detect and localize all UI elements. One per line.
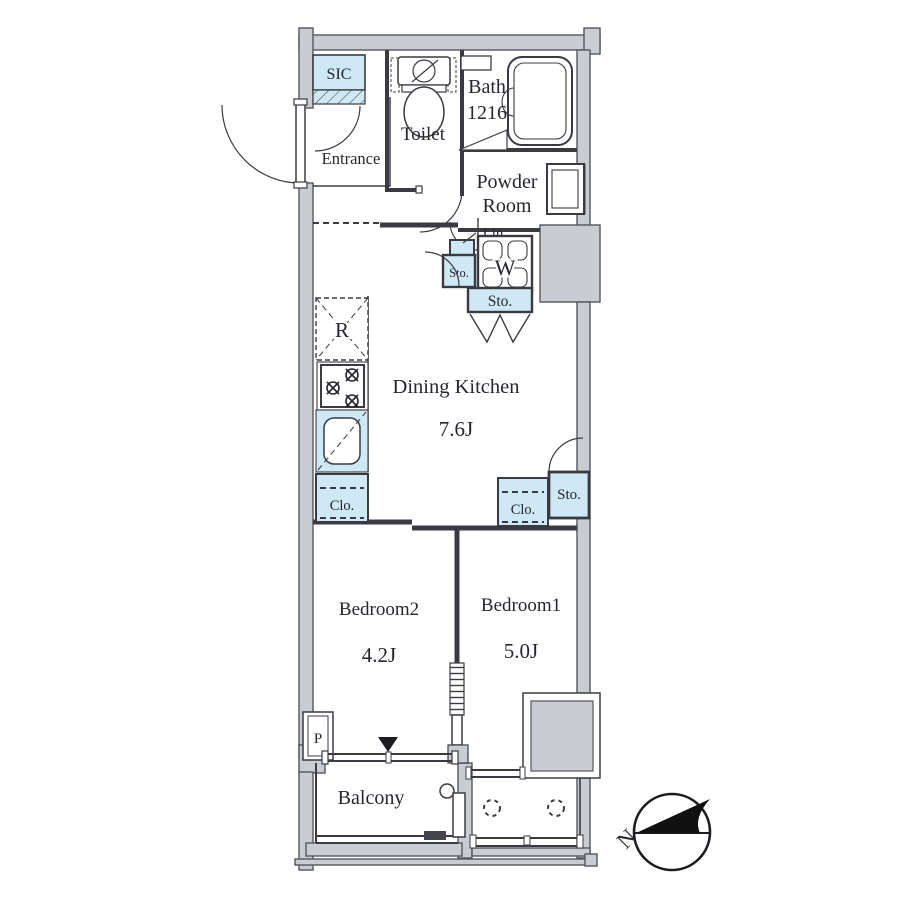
bath-size-label: 1216 (467, 102, 507, 124)
bath-counter (461, 56, 491, 70)
entrance-door-leaf (296, 104, 305, 183)
floor-plan-page: SIC Entrance Toilet Bath 1216 (0, 0, 900, 900)
sic-label: SIC (327, 66, 352, 83)
dining-kitchen-label: Dining Kitchen (393, 376, 520, 398)
powder-room-label-1: Powder (476, 171, 537, 193)
balcony-label: Balcony (338, 787, 405, 809)
entrance-label: Entrance (322, 149, 381, 168)
storage-folding-label: Sto. (488, 293, 513, 310)
partition-vent-window (450, 663, 464, 715)
structural-void (523, 693, 600, 778)
closet-right-label: Clo. (511, 502, 536, 518)
kitchen: R (316, 296, 368, 472)
sink (324, 418, 360, 464)
bedroom2-label: Bedroom2 (339, 599, 419, 620)
storage-small-label: Sto. (449, 266, 469, 280)
refrigerator-label: R (335, 318, 349, 342)
bath-label: Bath (468, 76, 506, 98)
dining-kitchen-size: 7.6J (439, 417, 473, 441)
powder-room-label-2: Room (483, 195, 532, 217)
pipe-space-label: P (314, 731, 322, 747)
floor-plan-drawing: SIC Entrance Toilet Bath 1216 (0, 0, 900, 900)
washer-label: W (495, 255, 516, 280)
canvas-background (0, 0, 900, 900)
closet-left-label: Clo. (330, 498, 355, 514)
toilet-label: Toilet (401, 124, 446, 145)
bedroom1-label: Bedroom1 (481, 595, 561, 616)
balcony-step (424, 831, 446, 840)
storage-right-label: Sto. (557, 487, 581, 503)
bedroom1-size: 5.0J (504, 639, 538, 663)
balcony-partition-panel (453, 793, 465, 837)
bedroom2-size: 4.2J (362, 643, 396, 667)
